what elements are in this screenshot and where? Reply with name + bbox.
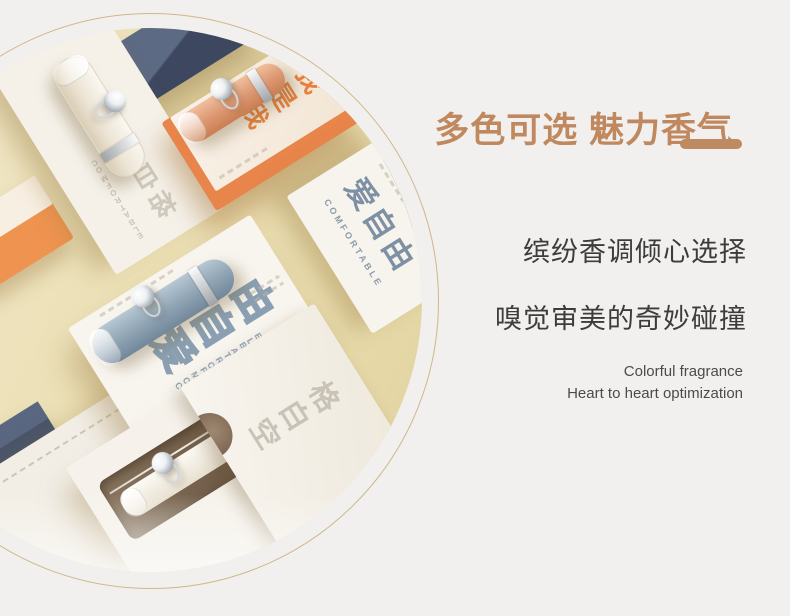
caption-line-2: Heart to heart optimization — [567, 386, 743, 401]
atomizer-cream — [47, 49, 152, 184]
crystal-ring-charm — [90, 86, 130, 123]
crystal-ring-charm — [128, 281, 165, 321]
headline-underline — [680, 139, 742, 149]
atomizer-peach-band — [246, 68, 273, 103]
promo-banner: 空白格 COMFORTABLE 我是我 — [0, 0, 790, 616]
subtitle-line-2: 嗅觉审美的奇妙碰撞 — [495, 306, 747, 333]
photo-bottom-fade — [0, 494, 422, 572]
subtitle-line-1: 缤纷香调倾心选择 — [523, 239, 747, 266]
box-orange-left — [0, 175, 74, 291]
box-right-white-label: 爱自由 — [340, 173, 422, 278]
box-bottom-white-label: 空白格 — [241, 376, 345, 456]
atomizer-slate-band — [188, 266, 219, 307]
caption-line-1: Colorful fragrance — [624, 364, 743, 379]
fine-print — [219, 147, 268, 179]
box-orange-left-lid — [0, 175, 53, 257]
atomizer-cream-band — [100, 133, 139, 163]
